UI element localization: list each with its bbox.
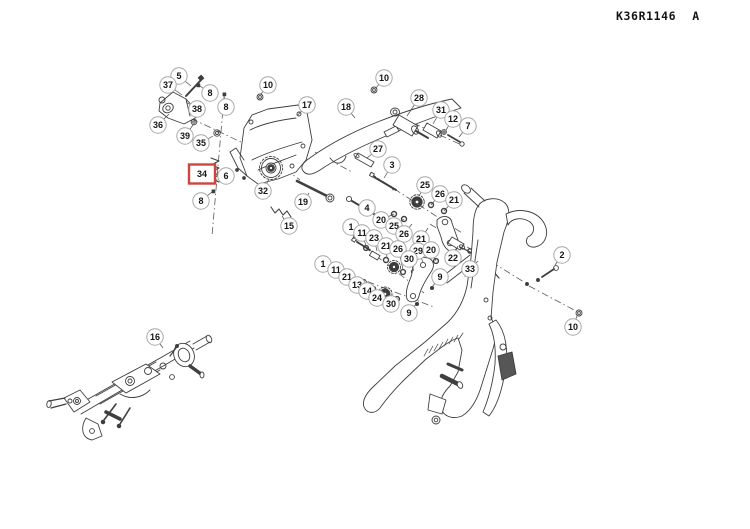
callout-number: 2 — [559, 250, 564, 260]
callout-number: 28 — [414, 93, 424, 103]
callout-number: 25 — [420, 180, 430, 190]
callout-number: 5 — [176, 71, 181, 81]
callout-number: 27 — [373, 144, 383, 154]
callout-number: 12 — [448, 114, 458, 124]
callout-18[interactable]: 18 — [338, 99, 355, 118]
callout-10[interactable]: 10 — [260, 77, 276, 94]
callout-number: 11 — [357, 228, 367, 238]
callout-number: 21 — [449, 195, 459, 205]
callout-number: 26 — [399, 229, 409, 239]
callout-number: 10 — [379, 73, 389, 83]
callout-number: 9 — [406, 308, 411, 318]
callout-number: 39 — [180, 131, 190, 141]
callout-number: 10 — [263, 80, 273, 90]
callout-8[interactable]: 8 — [218, 96, 234, 115]
callout-number: 20 — [426, 245, 436, 255]
frame-mount-fasteners — [526, 266, 583, 316]
callout-16[interactable]: 16 — [147, 329, 163, 348]
callout-layer: 5378388363935346810171810283112727343219… — [147, 68, 581, 348]
callout-number: 6 — [223, 171, 228, 181]
callout-19[interactable]: 19 — [295, 193, 311, 210]
callout-number: 8 — [207, 88, 212, 98]
callout-number: 10 — [568, 322, 578, 332]
callout-10[interactable]: 10 — [565, 316, 581, 335]
callout-number: 8 — [198, 196, 203, 206]
callout-number: 30 — [386, 299, 396, 309]
callout-4[interactable]: 4 — [359, 200, 375, 216]
callout-number: 1 — [320, 259, 325, 269]
callout-number: 31 — [436, 105, 446, 115]
callout-25[interactable]: 25 — [417, 177, 433, 196]
callout-10[interactable]: 10 — [376, 70, 392, 88]
callout-number: 17 — [302, 100, 312, 110]
swingarm-assembly — [46, 334, 213, 440]
callout-number: 16 — [150, 332, 160, 342]
callout-number: 3 — [389, 160, 394, 170]
callout-number: 37 — [163, 80, 173, 90]
callout-number: 22 — [448, 253, 458, 263]
callout-6[interactable]: 6 — [218, 168, 234, 184]
callout-number: 18 — [341, 102, 351, 112]
callout-number: 38 — [192, 104, 202, 114]
callout-3[interactable]: 3 — [384, 157, 400, 178]
highlighted-callout-34[interactable]: 34 — [189, 165, 215, 184]
callout-number: 23 — [369, 233, 379, 243]
callout-number: 33 — [465, 264, 475, 274]
callout-17[interactable]: 17 — [297, 97, 315, 116]
callout-9[interactable]: 9 — [432, 269, 448, 287]
callout-8[interactable]: 8 — [193, 192, 212, 209]
callout-35[interactable]: 35 — [193, 135, 213, 151]
callout-number: 1 — [348, 222, 353, 232]
callout-number: 9 — [437, 272, 442, 282]
callout-number: 34 — [197, 169, 207, 179]
spring — [271, 207, 291, 217]
callout-number: 32 — [258, 186, 268, 196]
callout-number: 36 — [153, 120, 163, 130]
callout-36[interactable]: 36 — [150, 114, 169, 133]
callout-2[interactable]: 2 — [554, 247, 570, 265]
callout-12[interactable]: 12 — [445, 111, 461, 130]
callout-number: 35 — [196, 138, 206, 148]
callout-33[interactable]: 33 — [462, 261, 478, 277]
callout-number: 15 — [284, 221, 294, 231]
callout-number: 26 — [435, 189, 445, 199]
callout-8[interactable]: 8 — [200, 85, 218, 101]
callout-7[interactable]: 7 — [459, 118, 476, 137]
callout-number: 20 — [376, 215, 386, 225]
callout-number: 8 — [223, 102, 228, 112]
exploded-parts-diagram: 5378388363935346810171810283112727343219… — [0, 0, 750, 529]
callout-15[interactable]: 15 — [281, 216, 297, 234]
callout-number: 24 — [372, 293, 382, 303]
callout-39[interactable]: 39 — [177, 125, 193, 144]
callout-number: 30 — [404, 254, 414, 264]
callout-9[interactable]: 9 — [401, 304, 417, 321]
callout-number: 4 — [364, 203, 369, 213]
callout-number: 7 — [465, 121, 470, 131]
callout-30[interactable]: 30 — [383, 296, 399, 312]
callout-number: 19 — [298, 197, 308, 207]
callout-number: 26 — [393, 244, 403, 254]
